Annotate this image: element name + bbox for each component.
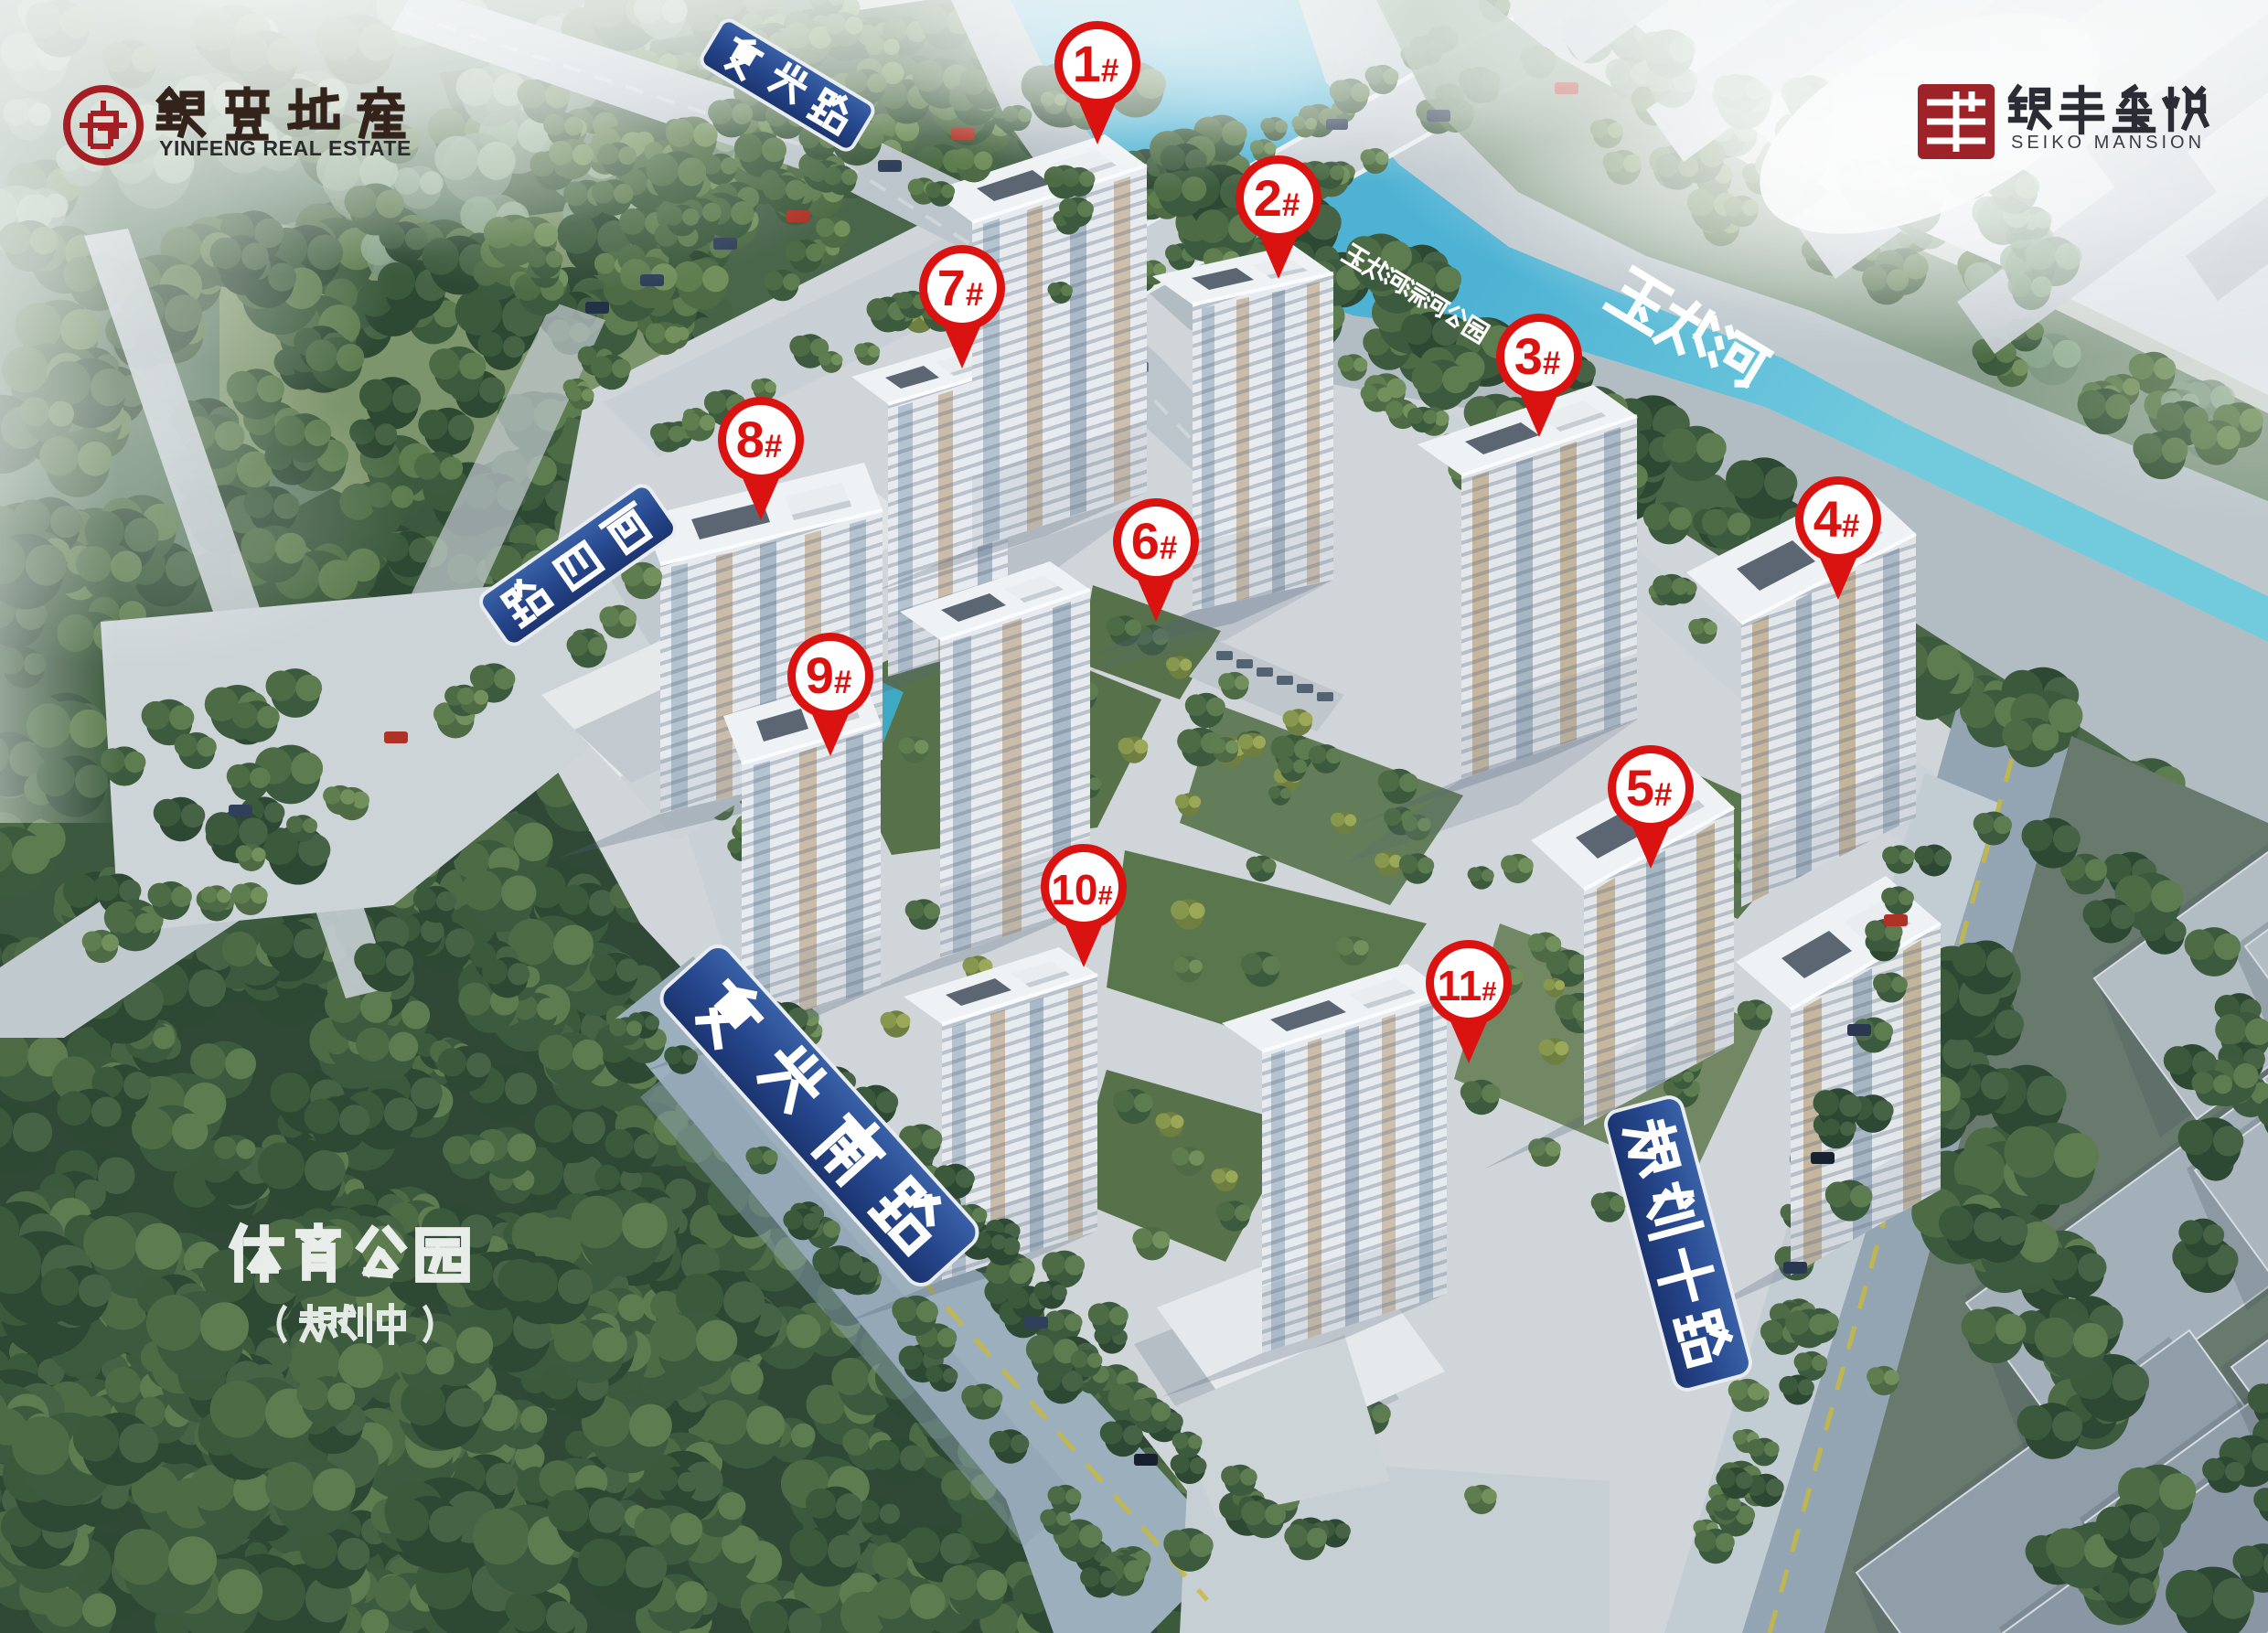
svg-text:YINFENG REAL ESTATE: YINFENG REAL ESTATE	[159, 136, 412, 160]
svg-text:SEIKO MANSION: SEIKO MANSION	[2011, 133, 2205, 153]
